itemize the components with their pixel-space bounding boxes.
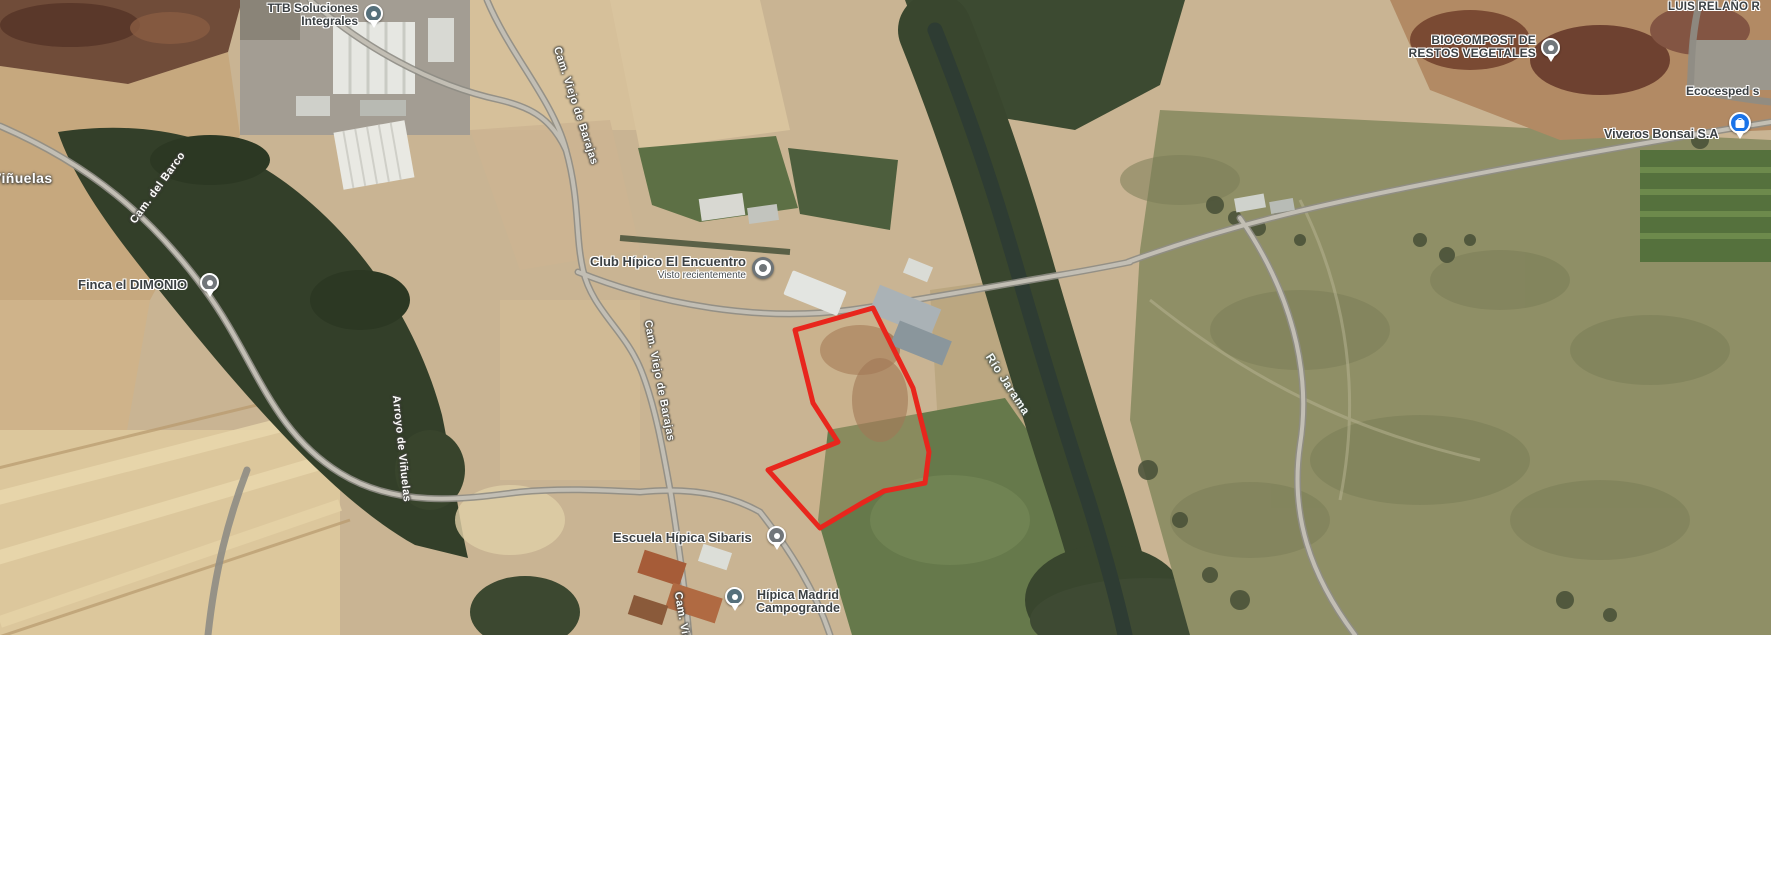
poi-label-hipica-madrid[interactable]: Hípica Madrid Campogrande [746, 589, 850, 615]
poi-label-ttb[interactable]: TTB Soluciones Integrales [228, 2, 358, 28]
poi-label-ttb-line1: TTB Soluciones [267, 1, 358, 15]
scrubland [1120, 110, 1771, 635]
poi-label-biocompost-line1: BIOCOMPOST DE [1431, 33, 1536, 47]
satellite-imagery [0, 0, 1771, 635]
poi-label-hipica-madrid-line2: Campogrande [756, 601, 840, 615]
shopping-pin-icon-viveros[interactable] [1729, 112, 1751, 134]
poi-label-ttb-line2: Integrales [301, 14, 358, 28]
place-pin-icon-finca[interactable] [200, 273, 219, 292]
poi-label-club-hipico[interactable]: Club Hípico El Encuentro Visto recientem… [530, 254, 746, 281]
poi-label-finca-dimonio[interactable]: Finca el DIMONIO [78, 277, 187, 292]
poi-label-viveros-bonsai[interactable]: Viveros Bonsai S.A [1604, 127, 1718, 141]
page-background [0, 635, 1771, 888]
poi-label-luis-relano[interactable]: LUIS RELAÑO R [1668, 1, 1760, 13]
poi-label-escuela-sibaris[interactable]: Escuela Hípica Sibaris [613, 530, 752, 545]
visited-place-marker-icon-club[interactable] [752, 257, 774, 279]
poi-label-club-hipico-sub: Visto recientemente [530, 270, 746, 281]
poi-label-biocompost[interactable]: BIOCOMPOST DE RESTOS VEGETALES [1386, 34, 1536, 60]
place-pin-icon-escuela[interactable] [767, 526, 786, 545]
poi-label-club-hipico-name: Club Hípico El Encuentro [590, 254, 746, 269]
poi-label-hipica-madrid-line1: Hípica Madrid [757, 588, 839, 602]
place-pin-icon-hipica[interactable] [725, 587, 744, 606]
place-pin-icon-biocompost[interactable] [1541, 38, 1560, 57]
place-pin-icon-ttb[interactable] [364, 4, 383, 23]
shopping-bag-icon [1737, 118, 1744, 123]
poi-label-ecocesped[interactable]: Ecocesped s [1686, 84, 1759, 98]
poi-label-biocompost-line2: RESTOS VEGETALES [1409, 46, 1536, 60]
greenhouse [334, 120, 415, 190]
satellite-map[interactable]: Cam. del Barco Cam. Viejo de Barajas Cam… [0, 0, 1771, 635]
town-label-vinuelas: Viñuelas [0, 170, 53, 186]
maps-screenshot: Cam. del Barco Cam. Viejo de Barajas Cam… [0, 0, 1771, 888]
